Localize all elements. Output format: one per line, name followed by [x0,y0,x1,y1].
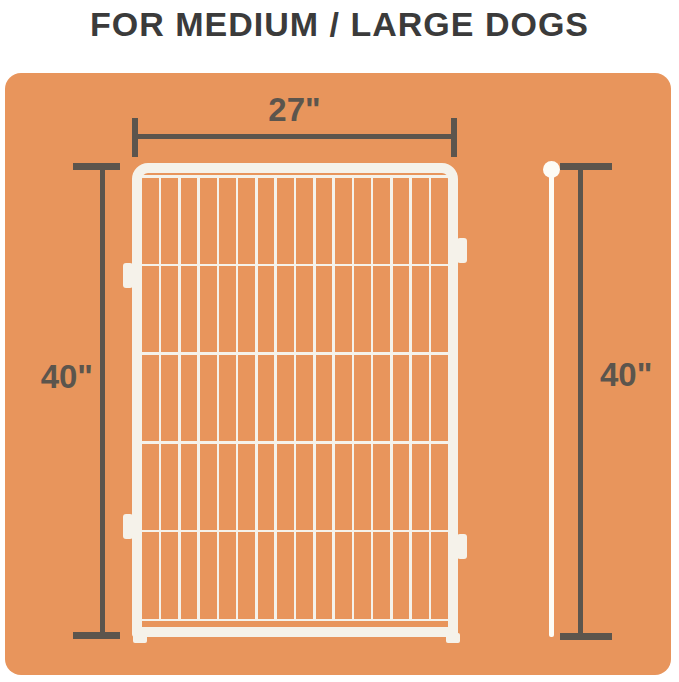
height-left-label: 40" [25,360,93,394]
height-right-line [578,167,583,637]
fence-horizontal-wire [142,264,448,267]
connector-tab-left-lower [123,514,133,539]
side-view-rod [549,173,554,637]
fence-panel [132,163,458,637]
fence-horizontal-wire [142,175,448,178]
width-dimension-line [132,134,457,139]
fence-horizontal-wires [142,175,448,621]
height-right-cap-top [560,163,612,170]
height-left-cap-bottom [73,632,120,639]
infographic: FOR MEDIUM / LARGE DOGS 27" 40" 40" [0,0,679,682]
fence-horizontal-wire [142,619,448,622]
connector-tab-left-upper [123,263,133,288]
width-dimension-label: 27" [132,93,457,127]
connector-tab-right-upper [457,238,467,263]
height-right-cap-bottom [560,633,612,640]
fence-grid [142,175,448,621]
orange-panel: 27" 40" 40" [5,73,671,675]
fence-horizontal-wire [142,530,448,533]
fence-horizontal-wire [142,352,448,355]
height-right-label: 40" [600,358,652,392]
height-left-line [100,167,105,636]
connector-tab-right-lower [457,534,467,559]
height-left-cap-top [73,163,120,170]
page-title: FOR MEDIUM / LARGE DOGS [0,0,679,48]
fence-horizontal-wire [142,441,448,444]
